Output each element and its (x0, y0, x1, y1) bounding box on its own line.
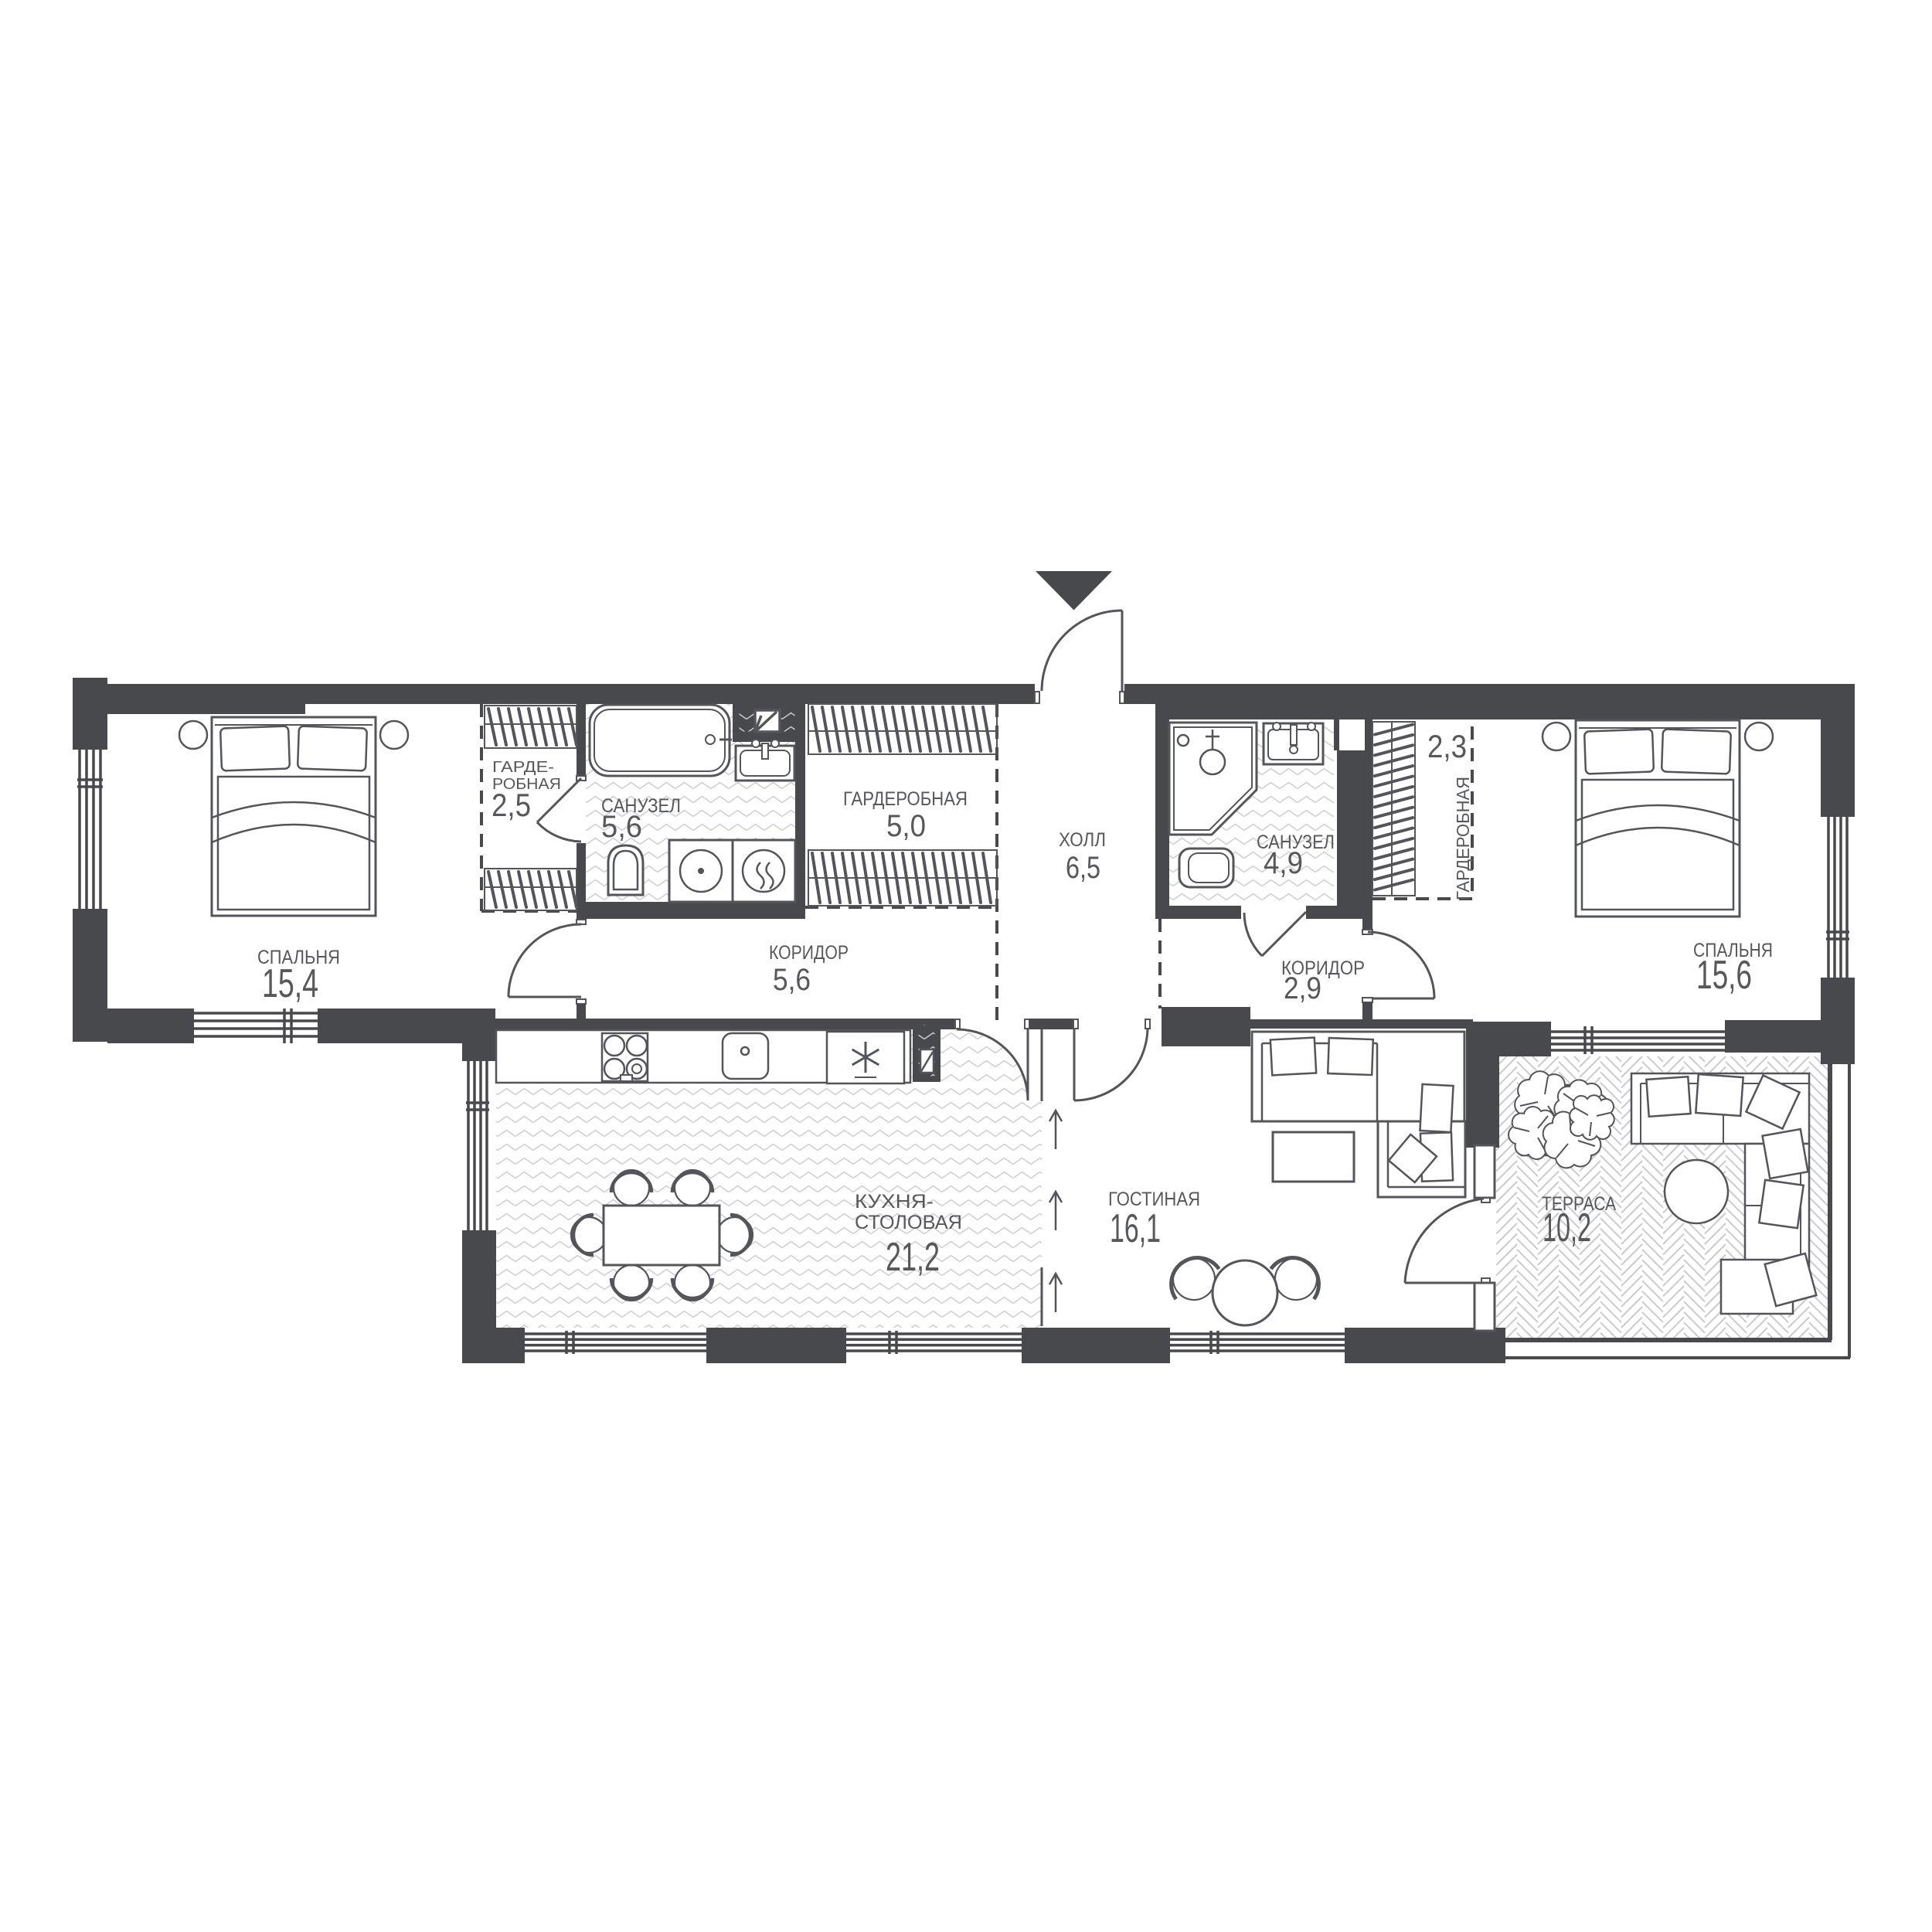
svg-text:КУХНЯ-: КУХНЯ- (855, 1191, 934, 1213)
svg-text:10,2: 10,2 (1543, 1206, 1591, 1250)
svg-text:ХОЛЛ: ХОЛЛ (1059, 829, 1106, 851)
svg-text:КОРИДОР: КОРИДОР (769, 942, 849, 964)
svg-text:ГАРДЕРОБНАЯ: ГАРДЕРОБНАЯ (843, 788, 968, 810)
svg-text:5,0: 5,0 (886, 809, 926, 843)
svg-text:16,1: 16,1 (1110, 1206, 1161, 1251)
svg-text:15,4: 15,4 (262, 961, 318, 1006)
svg-text:4,9: 4,9 (1264, 846, 1303, 880)
svg-text:ГАРДЕ-: ГАРДЕ- (492, 759, 554, 776)
svg-text:2,3: 2,3 (1427, 728, 1467, 764)
svg-text:2,9: 2,9 (1284, 971, 1321, 1005)
svg-text:6,5: 6,5 (1066, 851, 1100, 885)
svg-text:5,6: 5,6 (773, 963, 811, 997)
svg-text:5,6: 5,6 (601, 810, 642, 844)
svg-text:2,5: 2,5 (492, 787, 531, 823)
svg-text:ГАРДЕРОБНАЯ: ГАРДЕРОБНАЯ (1453, 777, 1473, 900)
svg-text:21,2: 21,2 (886, 1235, 940, 1280)
svg-text:СТОЛОВАЯ: СТОЛОВАЯ (855, 1212, 962, 1233)
svg-text:15,6: 15,6 (1696, 953, 1752, 998)
